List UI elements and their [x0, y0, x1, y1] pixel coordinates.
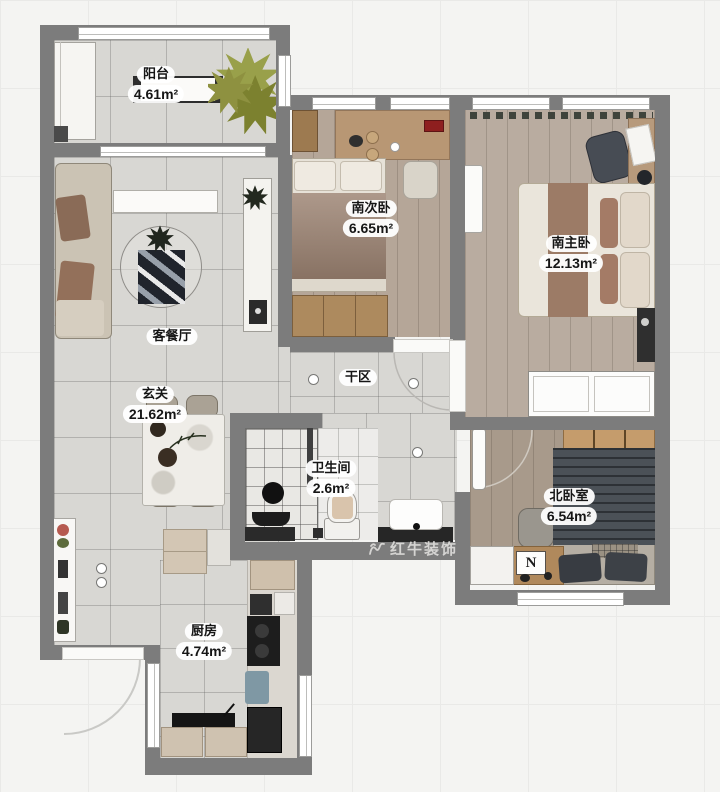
second-bedroom-door-arc [392, 350, 454, 412]
north-desk-item-2 [544, 572, 552, 580]
kitchen-window [299, 675, 312, 757]
cabinet-plant [240, 184, 270, 212]
room-label-balcony: 阳台 4.61m² [128, 66, 184, 103]
table-vase-1 [150, 421, 166, 437]
shelf-item-2 [58, 592, 68, 614]
sofa-throw [56, 300, 104, 336]
second-wardrobe-div-2 [355, 295, 356, 337]
room-name: 客餐厅 [146, 328, 197, 345]
second-pillow-1 [294, 161, 336, 191]
north-pillow-1 [558, 553, 602, 584]
balcony-sliding-door [100, 146, 266, 157]
shower-head [262, 482, 284, 504]
entry-door-opening [62, 647, 144, 660]
north-cabinet [470, 546, 514, 585]
cabinet-speaker-dot [255, 308, 261, 314]
room-label-bathroom: 卫生间 2.6m² [305, 460, 356, 497]
entry-door-arc [62, 656, 142, 736]
second-wardrobe-div-1 [323, 295, 324, 337]
room-area: 2.6m² [307, 479, 356, 497]
room-label-master-bedroom: 南主卧 12.13m² [539, 235, 603, 272]
wall-bath-left [230, 413, 245, 560]
burner-1 [255, 624, 269, 638]
room-area: 12.13m² [539, 254, 603, 272]
master-pillow-2 [620, 252, 650, 308]
master-wardrobe-panel-2 [594, 376, 650, 412]
room-label-living: 客餐厅 [146, 328, 197, 345]
balcony-dark-unit [54, 126, 68, 142]
desk-kettle [349, 135, 363, 147]
master-wardrobe-panel-1 [533, 376, 589, 412]
desk-keyboard [424, 120, 444, 132]
balcony-window [78, 27, 270, 40]
balcony-side-window [278, 55, 291, 107]
toilet-lid [332, 496, 353, 519]
ceiling-light-dry-2 [308, 374, 319, 385]
bull-logo-icon [368, 540, 386, 558]
wall-second-bottom [290, 337, 395, 352]
second-bed-foot [292, 279, 386, 291]
kitchen-small-appliance [274, 592, 295, 615]
second-pillow-2 [340, 161, 382, 191]
room-area: 6.54m² [541, 507, 597, 525]
floor-plan: N 阳台 4.61m² 客餐厅 玄关 21.62m² 南次卧 6.65m² 南主… [0, 0, 720, 792]
shelf-item-3 [57, 620, 69, 634]
wall-second-master [450, 110, 465, 340]
shelf-plant [57, 538, 69, 548]
room-area: 21.62m² [123, 405, 187, 423]
north-desk-item-1 [520, 574, 530, 582]
room-label-north-bedroom: 北卧室 6.54m² [541, 488, 597, 525]
desk-cup-2 [366, 148, 379, 161]
master-curtain [470, 112, 653, 119]
room-name: 厨房 [185, 623, 223, 640]
shower-fixture [252, 512, 290, 526]
north-desk-poster: N [516, 551, 546, 575]
room-label-second-bedroom: 南次卧 6.65m² [343, 200, 399, 237]
north-pillow-2 [604, 552, 647, 582]
kitchen-tall-unit [207, 529, 231, 566]
table-sprig [168, 430, 208, 452]
wall-left [40, 25, 54, 660]
master-stool [637, 170, 652, 185]
second-bedroom-window-2 [390, 97, 450, 110]
shelf-item-1 [58, 560, 68, 578]
nightstand-lamp [641, 318, 649, 326]
north-bedroom-door-leaf [472, 428, 486, 490]
burner-2 [255, 644, 269, 658]
watermark: 红牛装饰 [368, 538, 458, 559]
ceiling-light-entry-1 [96, 563, 107, 574]
sofa-pillow-1 [55, 194, 91, 242]
cutting-board [245, 671, 269, 704]
room-name: 卫生间 [305, 460, 356, 477]
master-window-2 [562, 97, 650, 110]
kitchen-base-cabinet-2 [205, 727, 247, 757]
second-wardrobe [292, 295, 388, 337]
kitchen-counter-line [163, 551, 207, 552]
master-door-opening [449, 340, 466, 412]
master-nightstand [637, 308, 655, 362]
wall-master-north [450, 417, 670, 430]
floor-drain [313, 528, 323, 538]
room-area: 6.65m² [343, 219, 399, 237]
north-bedroom-window [517, 592, 624, 606]
room-name: 南次卧 [345, 200, 396, 217]
shower-base [245, 527, 295, 541]
desk-dot [390, 142, 400, 152]
coffee-table-plant [146, 224, 174, 254]
master-door-panel [463, 165, 483, 233]
second-bedroom-window-1 [312, 97, 376, 110]
ceiling-light-sink [412, 447, 423, 458]
room-area: 4.74m² [176, 642, 232, 660]
kitchen-side-door [147, 663, 160, 748]
wall-bath-top [245, 413, 322, 428]
room-label-entry: 玄关 21.62m² [123, 386, 187, 423]
shelf-flowers [57, 524, 69, 536]
room-name: 玄关 [136, 386, 174, 403]
second-bedroom-door-opening [393, 339, 453, 353]
wall-living-second [278, 155, 292, 347]
kitchen-base-cabinet-1 [161, 727, 203, 757]
wall-kitchen-bottom [145, 758, 312, 775]
room-name: 北卧室 [543, 488, 594, 505]
sink-faucet [413, 523, 420, 530]
room-name: 南主卧 [545, 235, 596, 252]
console-shelf [113, 190, 218, 213]
second-chair [403, 161, 438, 199]
fridge [247, 707, 282, 753]
master-window-1 [472, 97, 550, 110]
room-name: 干区 [339, 369, 377, 386]
watermark-text: 红牛装饰 [390, 538, 458, 559]
master-pillow-1 [620, 192, 650, 248]
wall-right [655, 95, 670, 605]
second-cabinet [292, 110, 318, 152]
room-label-kitchen: 厨房 4.74m² [176, 623, 232, 660]
coffee-table [138, 250, 185, 304]
kitchen-cabinet-beige [250, 560, 295, 590]
desk-cup-1 [366, 131, 379, 144]
room-name: 阳台 [137, 66, 175, 83]
room-area: 4.61m² [128, 85, 184, 103]
coffee-machine [250, 594, 272, 615]
room-label-dry-area: 干区 [339, 369, 377, 386]
ceiling-light-entry-2 [96, 577, 107, 588]
